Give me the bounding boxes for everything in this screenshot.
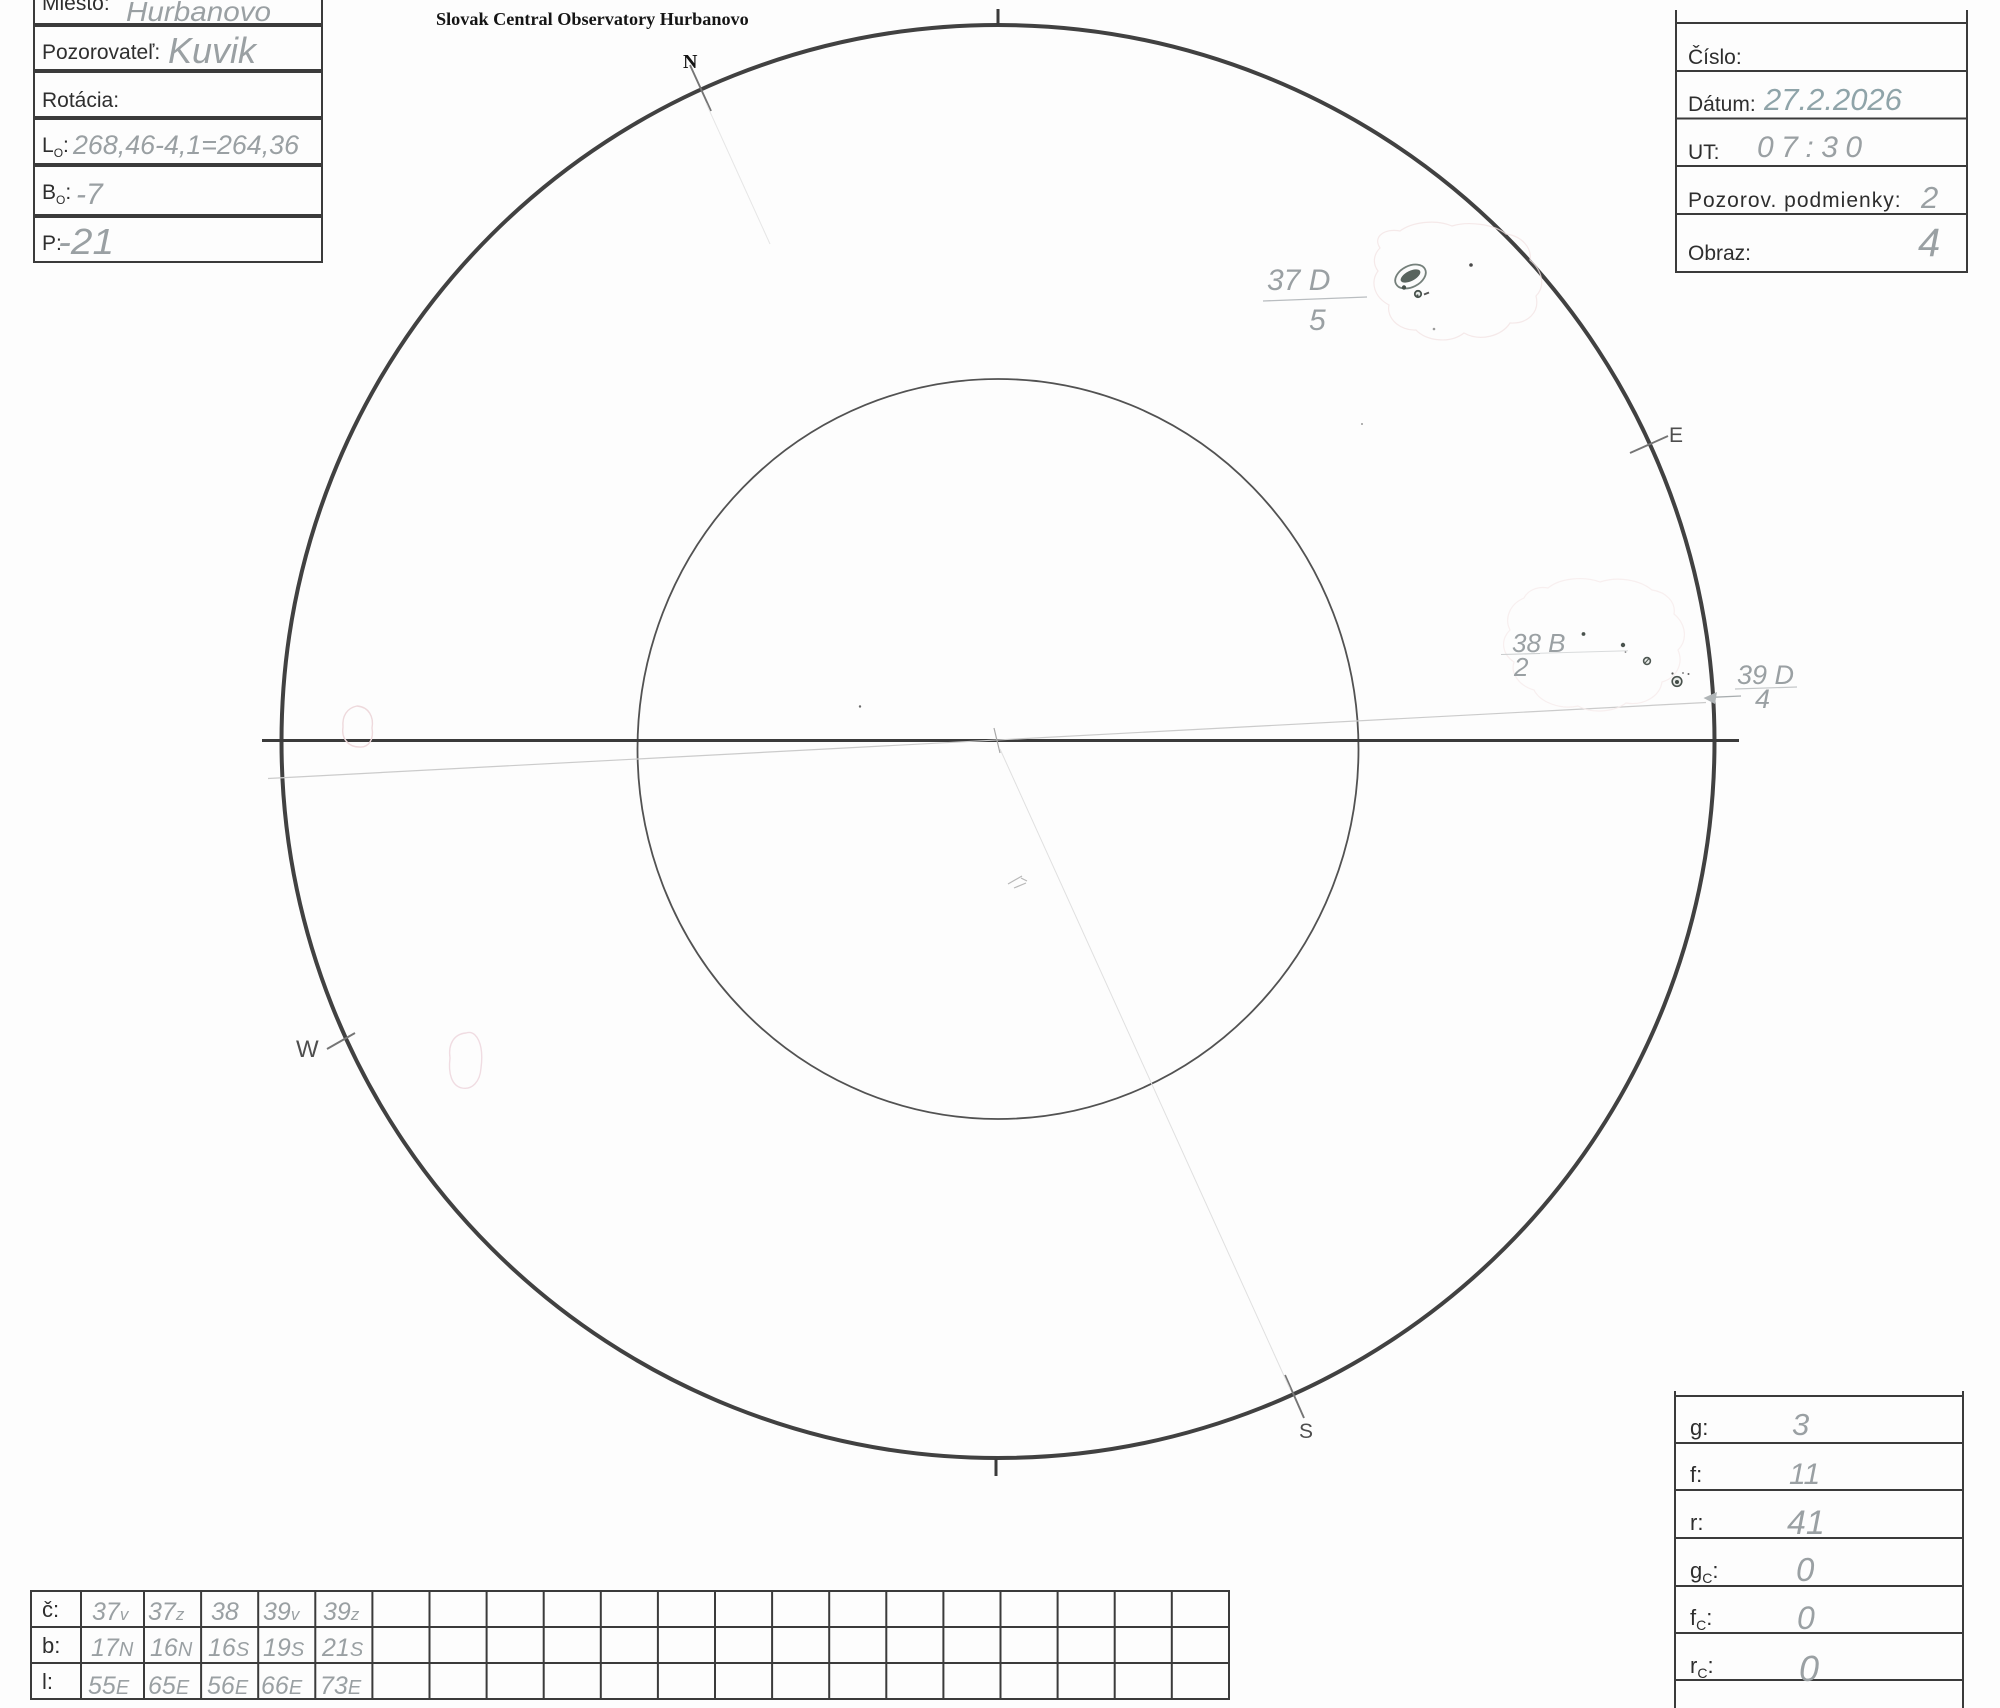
svg-text:07:30: 07:30 bbox=[1757, 131, 1870, 164]
svg-text:E: E bbox=[1669, 424, 1683, 447]
svg-text:W: W bbox=[296, 1036, 319, 1063]
svg-text:l:: l: bbox=[42, 1669, 53, 1694]
svg-text:Miesto:: Miesto: bbox=[42, 0, 110, 15]
svg-text:4: 4 bbox=[1918, 221, 1940, 265]
svg-text:0: 0 bbox=[1797, 1600, 1815, 1636]
svg-text:3: 3 bbox=[1792, 1407, 1809, 1442]
svg-text:41: 41 bbox=[1787, 1504, 1825, 1542]
svg-text:21S: 21S bbox=[321, 1634, 364, 1662]
svg-text:r:: r: bbox=[1690, 1510, 1703, 1535]
svg-text:f:: f: bbox=[1690, 1462, 1702, 1487]
svg-text:55E: 55E bbox=[88, 1672, 130, 1700]
svg-text:27.2.2026: 27.2.2026 bbox=[1763, 82, 1903, 117]
svg-text:Slovak Central Observatory Hur: Slovak Central Observatory Hurbanovo bbox=[436, 9, 749, 29]
svg-text:N: N bbox=[683, 51, 698, 73]
svg-text:37 D: 37 D bbox=[1267, 264, 1330, 297]
svg-text:66E: 66E bbox=[261, 1672, 303, 1700]
svg-text:UT:: UT: bbox=[1688, 141, 1720, 164]
svg-text:b:: b: bbox=[42, 1633, 60, 1658]
svg-text:0: 0 bbox=[1799, 1648, 1819, 1689]
svg-text:g:: g: bbox=[1690, 1415, 1708, 1440]
svg-text:16N: 16N bbox=[150, 1634, 193, 1662]
svg-text:16S: 16S bbox=[208, 1634, 250, 1662]
svg-text:0: 0 bbox=[1796, 1551, 1815, 1588]
svg-text:Kuvik: Kuvik bbox=[168, 30, 258, 71]
svg-text:268,46-4,1=264,36: 268,46-4,1=264,36 bbox=[72, 130, 300, 160]
svg-text:Pozorovateľ:: Pozorovateľ: bbox=[42, 41, 160, 64]
svg-text:-7: -7 bbox=[76, 178, 104, 211]
svg-text:S: S bbox=[1299, 1420, 1313, 1443]
svg-text:5: 5 bbox=[1309, 304, 1326, 337]
svg-text:56E: 56E bbox=[207, 1672, 249, 1700]
svg-text:Číslo:: Číslo: bbox=[1688, 46, 1742, 69]
svg-text:4: 4 bbox=[1755, 684, 1770, 714]
svg-text:11: 11 bbox=[1789, 1458, 1820, 1491]
svg-text:73E: 73E bbox=[320, 1672, 362, 1700]
svg-text:č:: č: bbox=[42, 1597, 59, 1622]
svg-text:38: 38 bbox=[211, 1598, 239, 1626]
svg-text:Rotácia:: Rotácia: bbox=[42, 89, 119, 112]
svg-text:2: 2 bbox=[1513, 652, 1529, 682]
svg-text:Pozorov. podmienky:: Pozorov. podmienky: bbox=[1688, 189, 1902, 212]
svg-text:65E: 65E bbox=[148, 1672, 190, 1700]
svg-text:-21: -21 bbox=[58, 221, 114, 262]
svg-text:19S: 19S bbox=[263, 1634, 305, 1662]
svg-text:17N: 17N bbox=[91, 1634, 134, 1662]
svg-text:Obraz:: Obraz: bbox=[1688, 242, 1751, 265]
svg-text:2: 2 bbox=[1920, 180, 1938, 215]
svg-text:Dátum:: Dátum: bbox=[1688, 93, 1756, 116]
svg-text:Hurbanovo: Hurbanovo bbox=[126, 0, 271, 27]
